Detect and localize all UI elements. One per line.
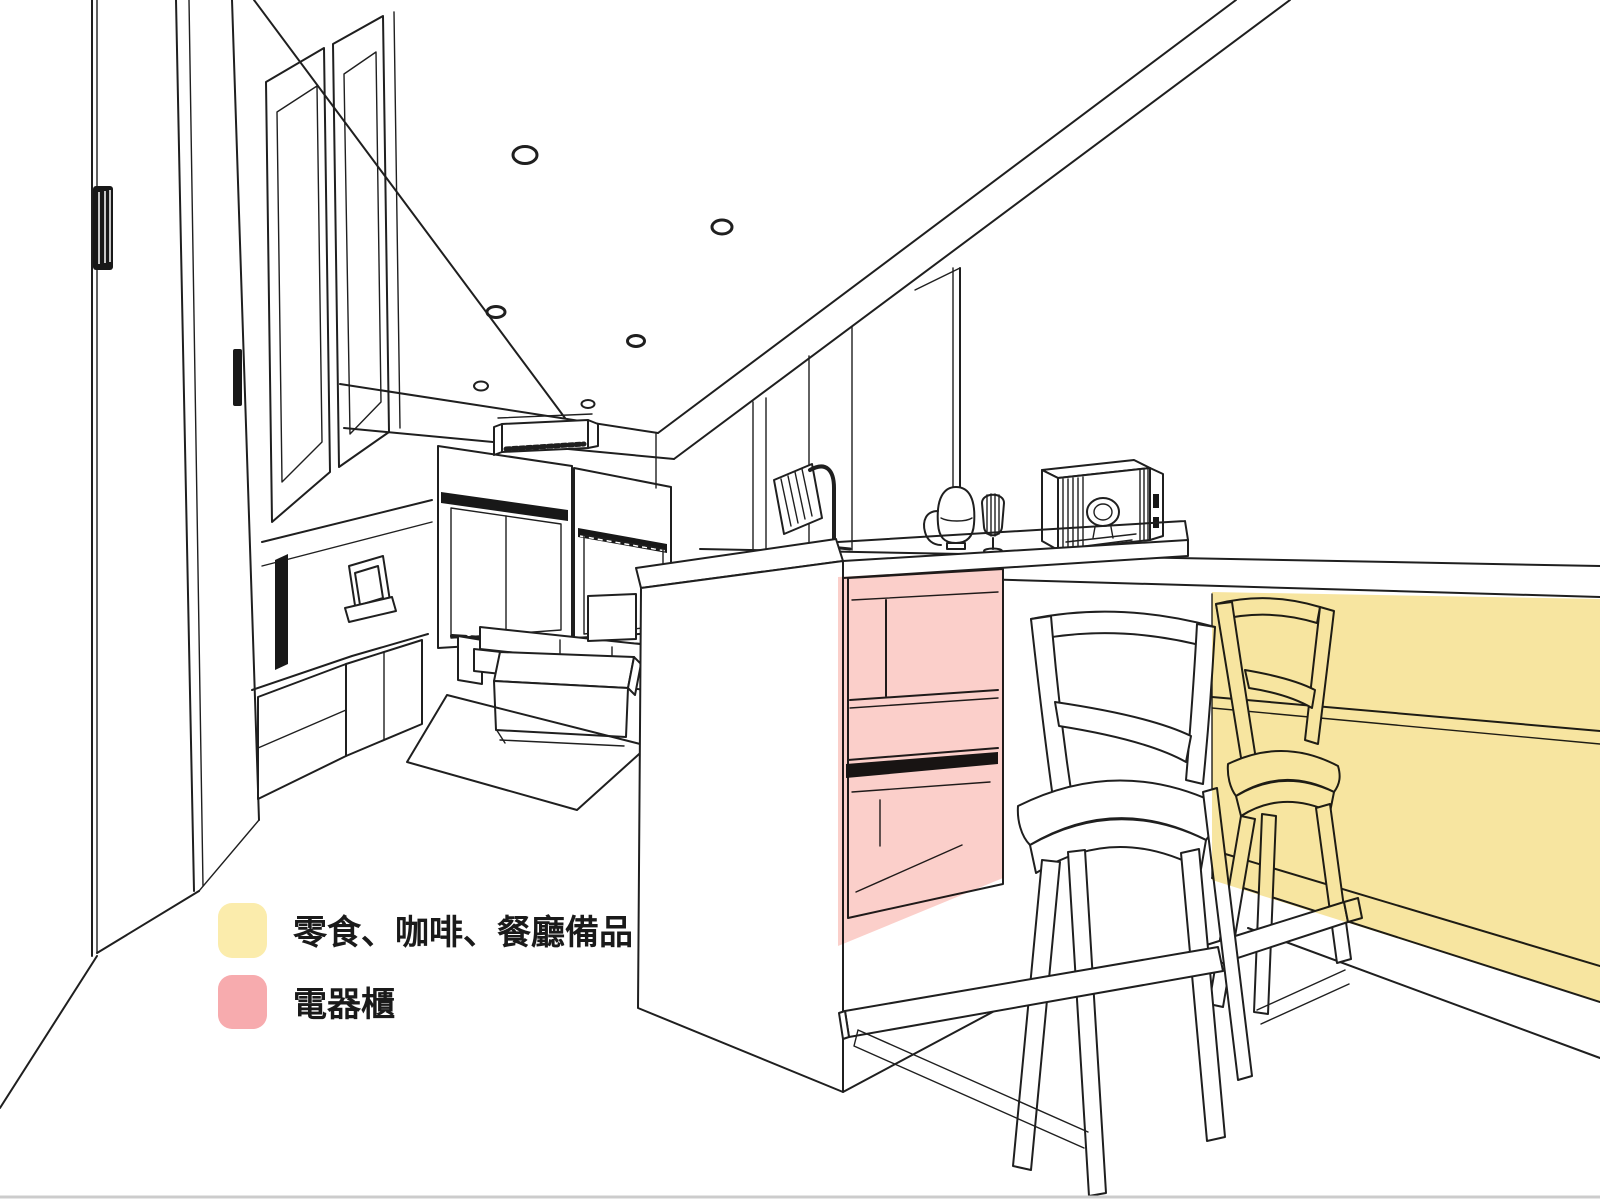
legend-label-appliance: 電器櫃 (293, 985, 395, 1025)
legend-item-appliance: 電器櫃 (218, 975, 395, 1029)
window-left (438, 446, 572, 648)
interior-perspective-sketch: 零食、咖啡、餐廳備品 電器櫃 (0, 0, 1600, 1200)
downlight-icon (513, 147, 537, 164)
door-handle-icon (93, 186, 113, 270)
downlight-icon (474, 382, 488, 391)
legend-swatch-pink (218, 975, 267, 1029)
tv-screen-edge (275, 554, 288, 670)
legend: 零食、咖啡、餐廳備品 電器櫃 (218, 903, 633, 1029)
ceiling-downlights (474, 147, 732, 409)
interior-sketch-page: 零食、咖啡、餐廳備品 電器櫃 (0, 0, 1600, 1200)
laptop-icon (345, 556, 396, 622)
door-handle-icon (233, 349, 242, 406)
coffee-machine (1042, 460, 1163, 550)
roller-blind-bar (441, 492, 568, 521)
downlight-icon (712, 220, 732, 234)
downlight-icon (582, 400, 595, 408)
legend-label-snacks: 零食、咖啡、餐廳備品 (293, 913, 633, 953)
kettle (924, 487, 974, 549)
legend-item-snacks: 零食、咖啡、餐廳備品 (218, 903, 633, 958)
desk-lamp (774, 464, 850, 549)
legend-swatch-yellow (218, 903, 267, 958)
coffee-table (494, 652, 641, 746)
wine-glass (982, 494, 1004, 554)
ceiling (254, 0, 1290, 488)
downlight-icon (628, 336, 645, 347)
air-conditioner (494, 414, 598, 455)
tv-media-wall (252, 12, 432, 799)
highlight-overlays (838, 568, 1600, 1002)
downlight-icon (487, 307, 505, 318)
